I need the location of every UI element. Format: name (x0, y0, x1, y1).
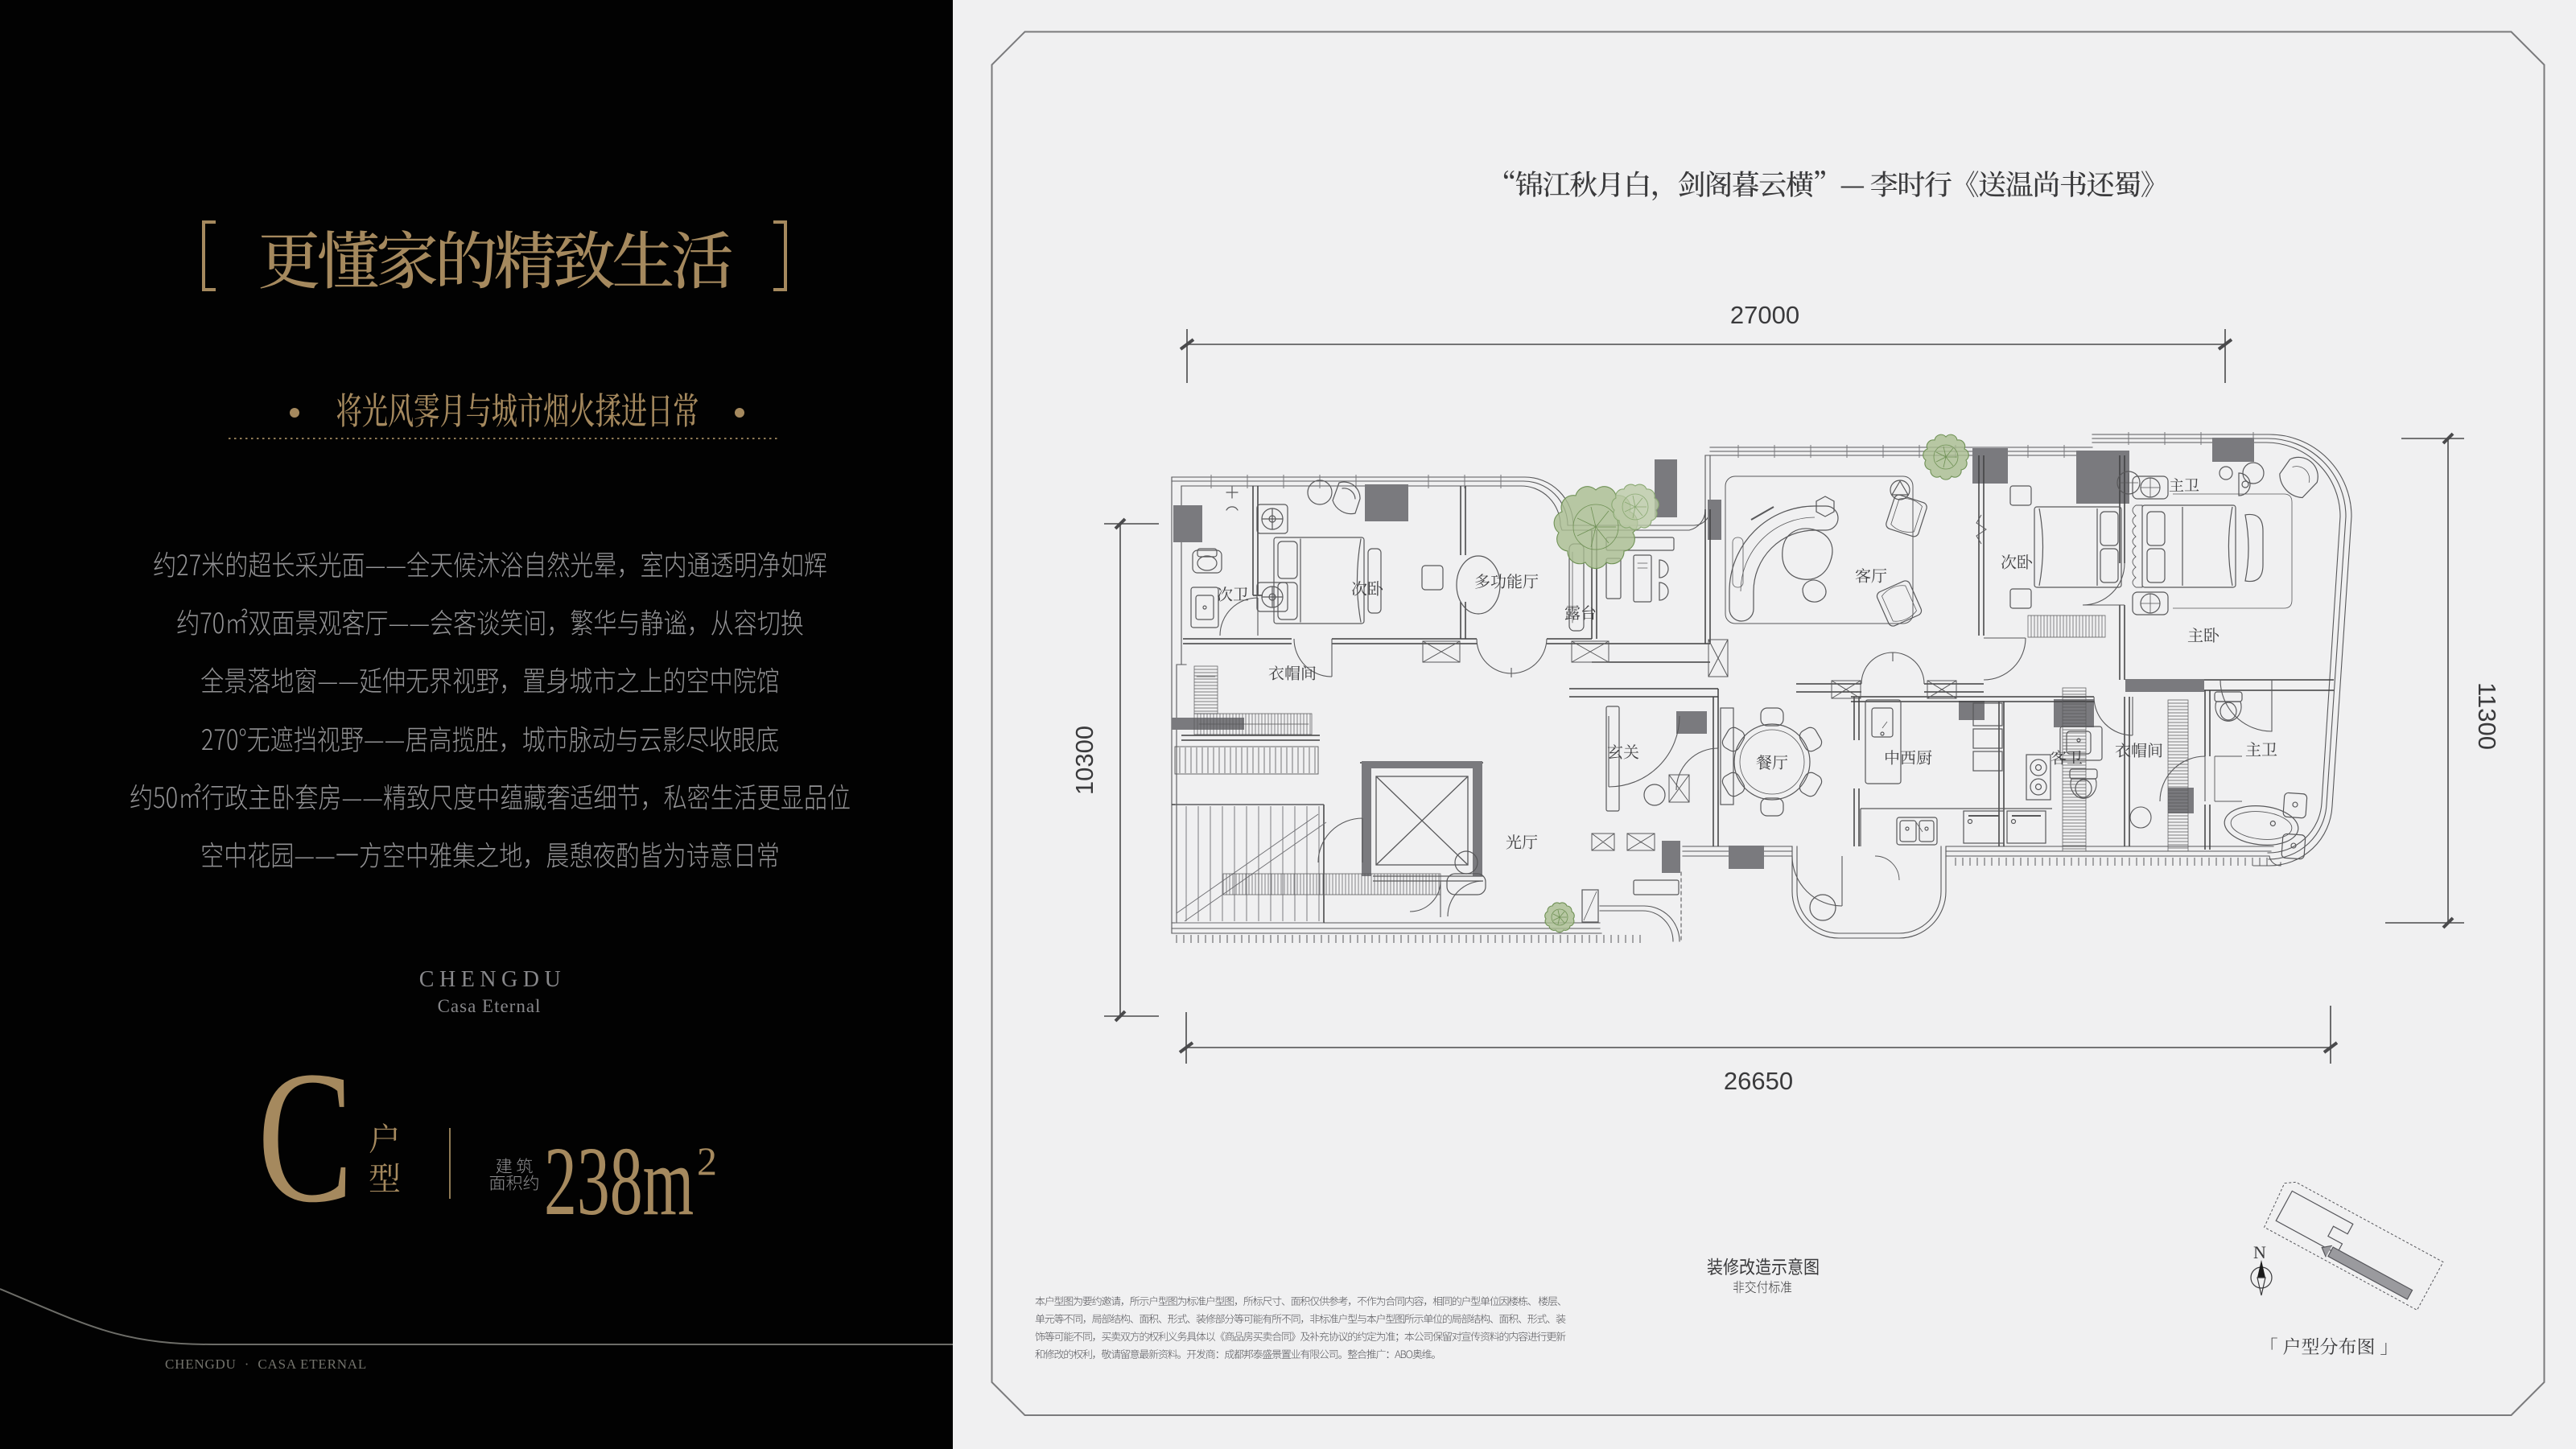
svg-text:27000: 27000 (1730, 301, 1799, 329)
svg-text:CHENGDU · CASA ETERNAL: CHENGDU · CASA ETERNAL (165, 1356, 367, 1372)
svg-text:C: C (258, 1033, 353, 1242)
svg-text:238m: 238m (544, 1127, 694, 1236)
svg-text:N: N (2253, 1242, 2266, 1262)
svg-text:CHENGDU: CHENGDU (419, 967, 566, 992)
svg-text:11300: 11300 (2473, 682, 2501, 750)
svg-text:Casa Eternal: Casa Eternal (438, 996, 542, 1016)
svg-text:2: 2 (697, 1138, 717, 1183)
svg-text:26650: 26650 (1724, 1067, 1793, 1095)
svg-text:10300: 10300 (1070, 726, 1098, 795)
